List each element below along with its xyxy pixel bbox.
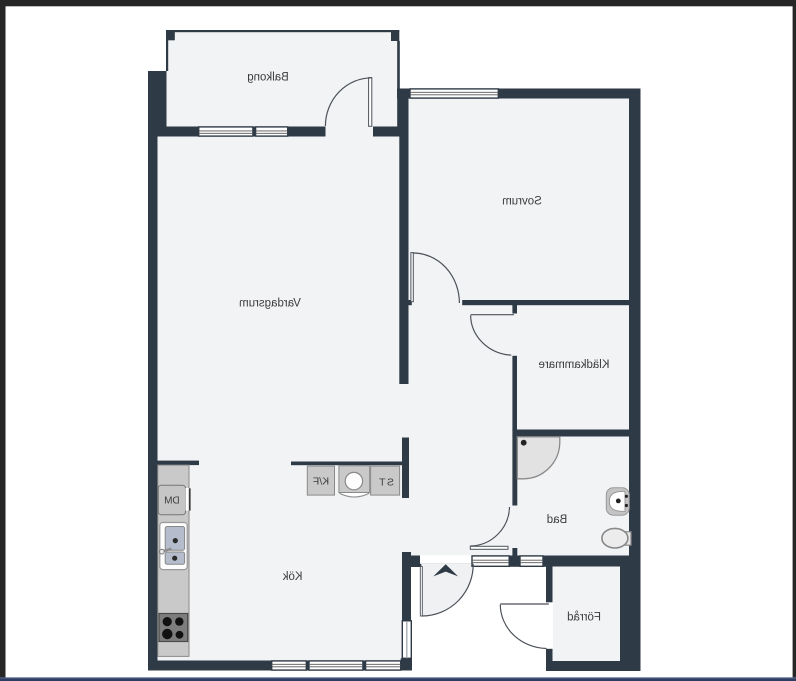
svg-text:ST: ST: [378, 477, 394, 489]
svg-text:Vardagsrum: Vardagsrum: [239, 298, 301, 310]
svg-text:Balkong: Balkong: [247, 71, 289, 83]
svg-text:K/F: K/F: [313, 475, 329, 487]
svg-text:Sovrum: Sovrum: [502, 196, 542, 208]
svg-text:DM: DM: [164, 496, 180, 507]
svg-text:Bad: Bad: [547, 514, 567, 526]
svg-text:Klädkammare: Klädkammare: [539, 359, 610, 371]
svg-text:Förråd: Förråd: [567, 612, 601, 624]
svg-text:Kök: Kök: [282, 571, 302, 583]
